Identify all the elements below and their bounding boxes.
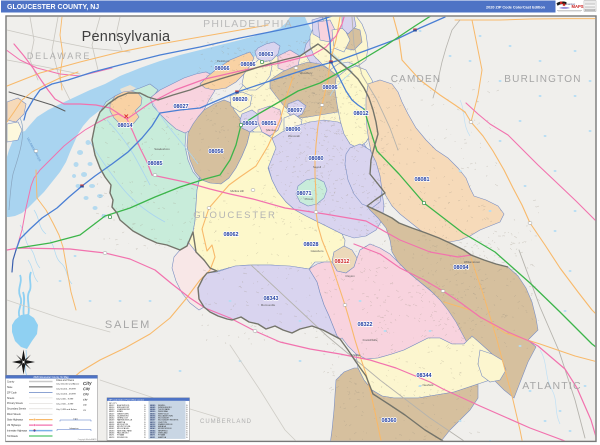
svg-text:08020: 08020: [233, 97, 248, 103]
svg-text:08051: 08051: [262, 121, 277, 127]
svg-text:08063: 08063: [259, 52, 274, 58]
svg-text:Pennsylvania: Pennsylvania: [82, 29, 171, 45]
svg-text:ATLANTIC: ATLANTIC: [522, 380, 582, 392]
svg-text:BURLINGTON: BURLINGTON: [504, 74, 581, 85]
svg-text:City: City: [83, 380, 93, 386]
svg-text:Monroeville: Monroeville: [261, 303, 276, 307]
svg-text:08096: 08096: [323, 85, 338, 91]
svg-text:MAPS: MAPS: [572, 4, 584, 9]
svg-text:US Highways: US Highways: [7, 425, 22, 427]
svg-text:08081: 08081: [415, 177, 430, 183]
svg-text:PHILADELPHIA: PHILADELPHIA: [203, 18, 293, 30]
svg-text:08028: 08028: [304, 242, 319, 248]
svg-text:City 50,000 - 99,999: City 50,000 - 99,999: [56, 387, 76, 390]
svg-text:08062: 08062: [224, 232, 239, 238]
svg-text:City 2,499 and Below: City 2,499 and Below: [56, 408, 77, 411]
svg-text:RICHWOOD: RICHWOOD: [117, 437, 128, 439]
svg-text:City 5,000 - 9,999: City 5,000 - 9,999: [56, 398, 74, 401]
svg-text:08027: 08027: [174, 104, 189, 110]
svg-text:08056: 08056: [209, 149, 224, 155]
svg-text:08360: 08360: [382, 418, 397, 424]
svg-text:City 2,500 - 4,999: City 2,500 - 4,999: [56, 403, 74, 406]
svg-text:City: City: [83, 387, 91, 392]
svg-text:GLOUCESTER: GLOUCESTER: [193, 210, 276, 221]
svg-text:Malaga: Malaga: [351, 353, 361, 357]
svg-text:CAMDEN: CAMDEN: [391, 74, 442, 85]
svg-text:08343: 08343: [264, 296, 279, 302]
svg-text:Clayton: Clayton: [345, 274, 355, 278]
svg-text:08344: 08344: [417, 373, 432, 379]
svg-text:Toll Roads: Toll Roads: [7, 436, 19, 438]
svg-text:CUMBERLAND: CUMBERLAND: [200, 419, 252, 425]
svg-text:Mullica Hill: Mullica Hill: [230, 189, 244, 193]
svg-text:miles: miles: [73, 418, 78, 420]
svg-text:Streets: Streets: [7, 397, 15, 400]
svg-text:Woodbury: Woodbury: [300, 71, 313, 75]
svg-text:City: City: [83, 392, 90, 397]
svg-text:City 100,000 and Above: City 100,000 and Above: [56, 382, 80, 385]
svg-text:MANTUA: MANTUA: [158, 436, 167, 439]
svg-text:State Highways: State Highways: [7, 419, 24, 422]
svg-text:Cities and Towns: Cities and Towns: [56, 379, 75, 382]
svg-text:SALEM: SALEM: [105, 319, 151, 331]
svg-text:08086: 08086: [241, 62, 256, 68]
svg-text:Williamstown: Williamstown: [464, 260, 481, 264]
svg-text:Sewell: Sewell: [313, 165, 322, 169]
svg-text:08012: 08012: [354, 111, 369, 117]
svg-text:Interstate Highways: Interstate Highways: [7, 429, 28, 432]
svg-text:08094: 08094: [454, 265, 469, 271]
svg-text:State: State: [7, 386, 13, 389]
svg-text:08074: 08074: [109, 437, 114, 439]
svg-text:County: County: [7, 380, 15, 383]
svg-text:08090: 08090: [286, 127, 301, 133]
svg-text:DELAWARE: DELAWARE: [27, 51, 91, 61]
svg-text:Wenonah: Wenonah: [288, 134, 300, 138]
svg-text:08066: 08066: [215, 66, 230, 72]
svg-text:08085: 08085: [148, 161, 163, 167]
svg-text:ZIP Code: ZIP Code: [7, 392, 17, 394]
svg-text:kilometers: kilometers: [69, 427, 78, 430]
svg-text:Newfield: Newfield: [423, 383, 434, 387]
svg-text:GLOUCESTER COUNTY, NJ: GLOUCESTER COUNTY, NJ: [7, 4, 99, 11]
svg-text:Mantua: Mantua: [266, 128, 276, 132]
svg-text:08051: 08051: [150, 437, 155, 439]
svg-text:Primary Streets: Primary Streets: [7, 402, 24, 405]
svg-text:Copyright MarketMAPS: Copyright MarketMAPS: [78, 438, 98, 441]
svg-text:08097: 08097: [288, 108, 303, 114]
svg-text:08061: 08061: [243, 121, 258, 127]
svg-text:Franklinville: Franklinville: [363, 338, 378, 342]
svg-text:Pitman: Pitman: [305, 197, 314, 201]
svg-text:City 10,000 - 49,999: City 10,000 - 49,999: [56, 393, 76, 396]
svg-text:Paulsboro: Paulsboro: [217, 59, 230, 63]
svg-text:08080: 08080: [309, 156, 324, 162]
svg-text:Secondary Streets: Secondary Streets: [7, 408, 27, 411]
svg-text:08312: 08312: [335, 259, 350, 265]
svg-text:2020 ZIP Code ColorCast Editio: 2020 ZIP Code ColorCast Edition: [486, 5, 546, 9]
svg-text:ZIP Code Index / Post Office L: ZIP Code Index / Post Office Locator: [109, 398, 145, 401]
svg-text:08014: 08014: [118, 123, 133, 129]
svg-text:Swedesboro: Swedesboro: [154, 147, 170, 151]
svg-text:08322: 08322: [358, 322, 373, 328]
svg-text:Minor Streets: Minor Streets: [7, 413, 22, 416]
svg-text:Glassboro: Glassboro: [311, 249, 324, 253]
